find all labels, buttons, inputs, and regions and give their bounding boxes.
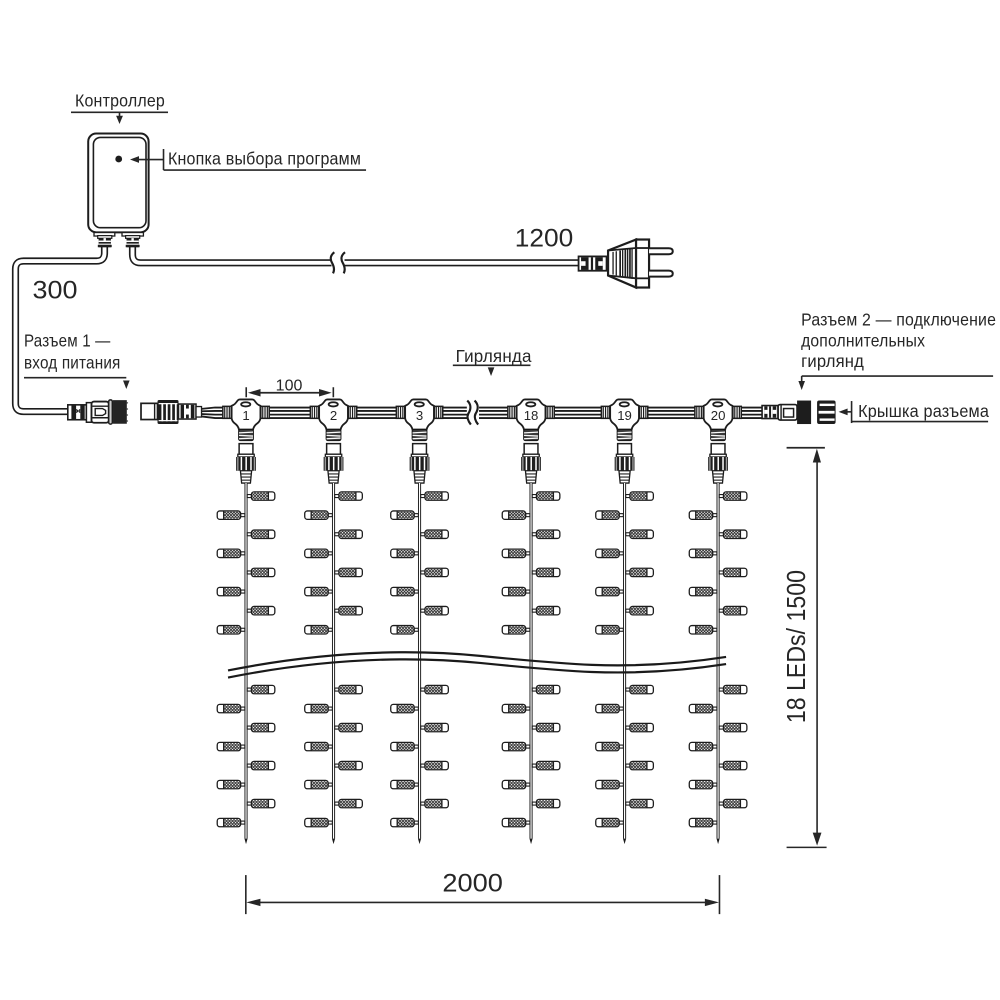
- svg-text:вход питания: вход питания: [24, 352, 121, 372]
- svg-text:100: 100: [276, 377, 303, 394]
- svg-text:2000: 2000: [442, 869, 503, 897]
- svg-text:Крышка разъема: Крышка разъема: [858, 401, 989, 421]
- svg-text:Гирлянда: Гирлянда: [456, 346, 532, 366]
- svg-text:2: 2: [330, 408, 337, 423]
- svg-text:300: 300: [33, 276, 78, 304]
- svg-text:20: 20: [711, 408, 726, 423]
- svg-text:1: 1: [242, 408, 249, 423]
- svg-text:дополнительных: дополнительных: [801, 330, 925, 350]
- svg-text:гирлянд: гирлянд: [801, 351, 864, 371]
- svg-text:Разъем 2 — подключение: Разъем 2 — подключение: [801, 310, 996, 330]
- svg-text:18 LEDs/ 1500: 18 LEDs/ 1500: [781, 570, 811, 723]
- svg-text:1200: 1200: [515, 224, 574, 252]
- svg-text:18: 18: [524, 408, 539, 423]
- svg-text:Контроллер: Контроллер: [75, 91, 165, 111]
- svg-text:3: 3: [416, 408, 423, 423]
- svg-text:19: 19: [617, 408, 632, 423]
- svg-text:Разъем 1 —: Разъем 1 —: [24, 331, 111, 351]
- svg-text:Кнопка выбора программ: Кнопка выбора программ: [168, 149, 361, 169]
